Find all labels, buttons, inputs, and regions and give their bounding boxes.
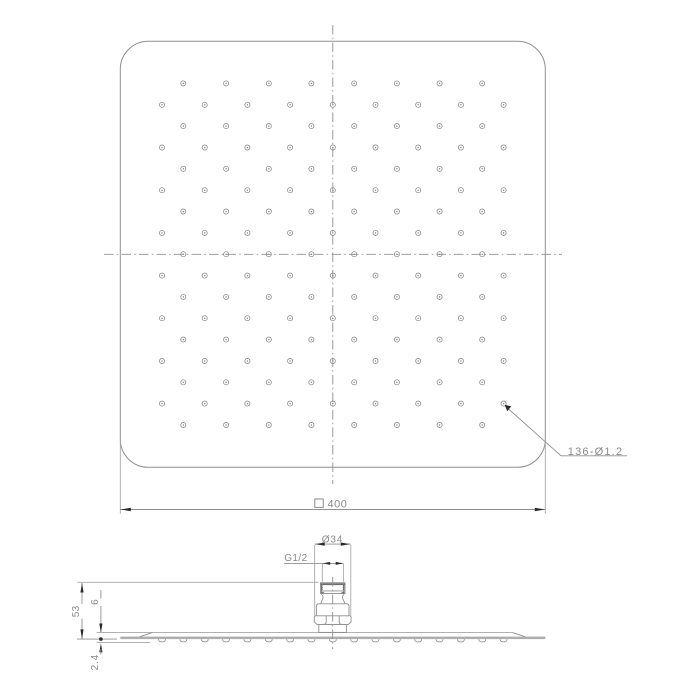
svg-text:400: 400 [328,498,348,510]
svg-text:Ø34: Ø34 [322,534,343,545]
svg-text:6: 6 [90,599,101,605]
svg-text:2.4: 2.4 [90,654,101,671]
svg-text:G1/2: G1/2 [284,553,307,564]
svg-text:53: 53 [71,605,82,617]
svg-text:136-Ø1.2: 136-Ø1.2 [568,446,623,458]
